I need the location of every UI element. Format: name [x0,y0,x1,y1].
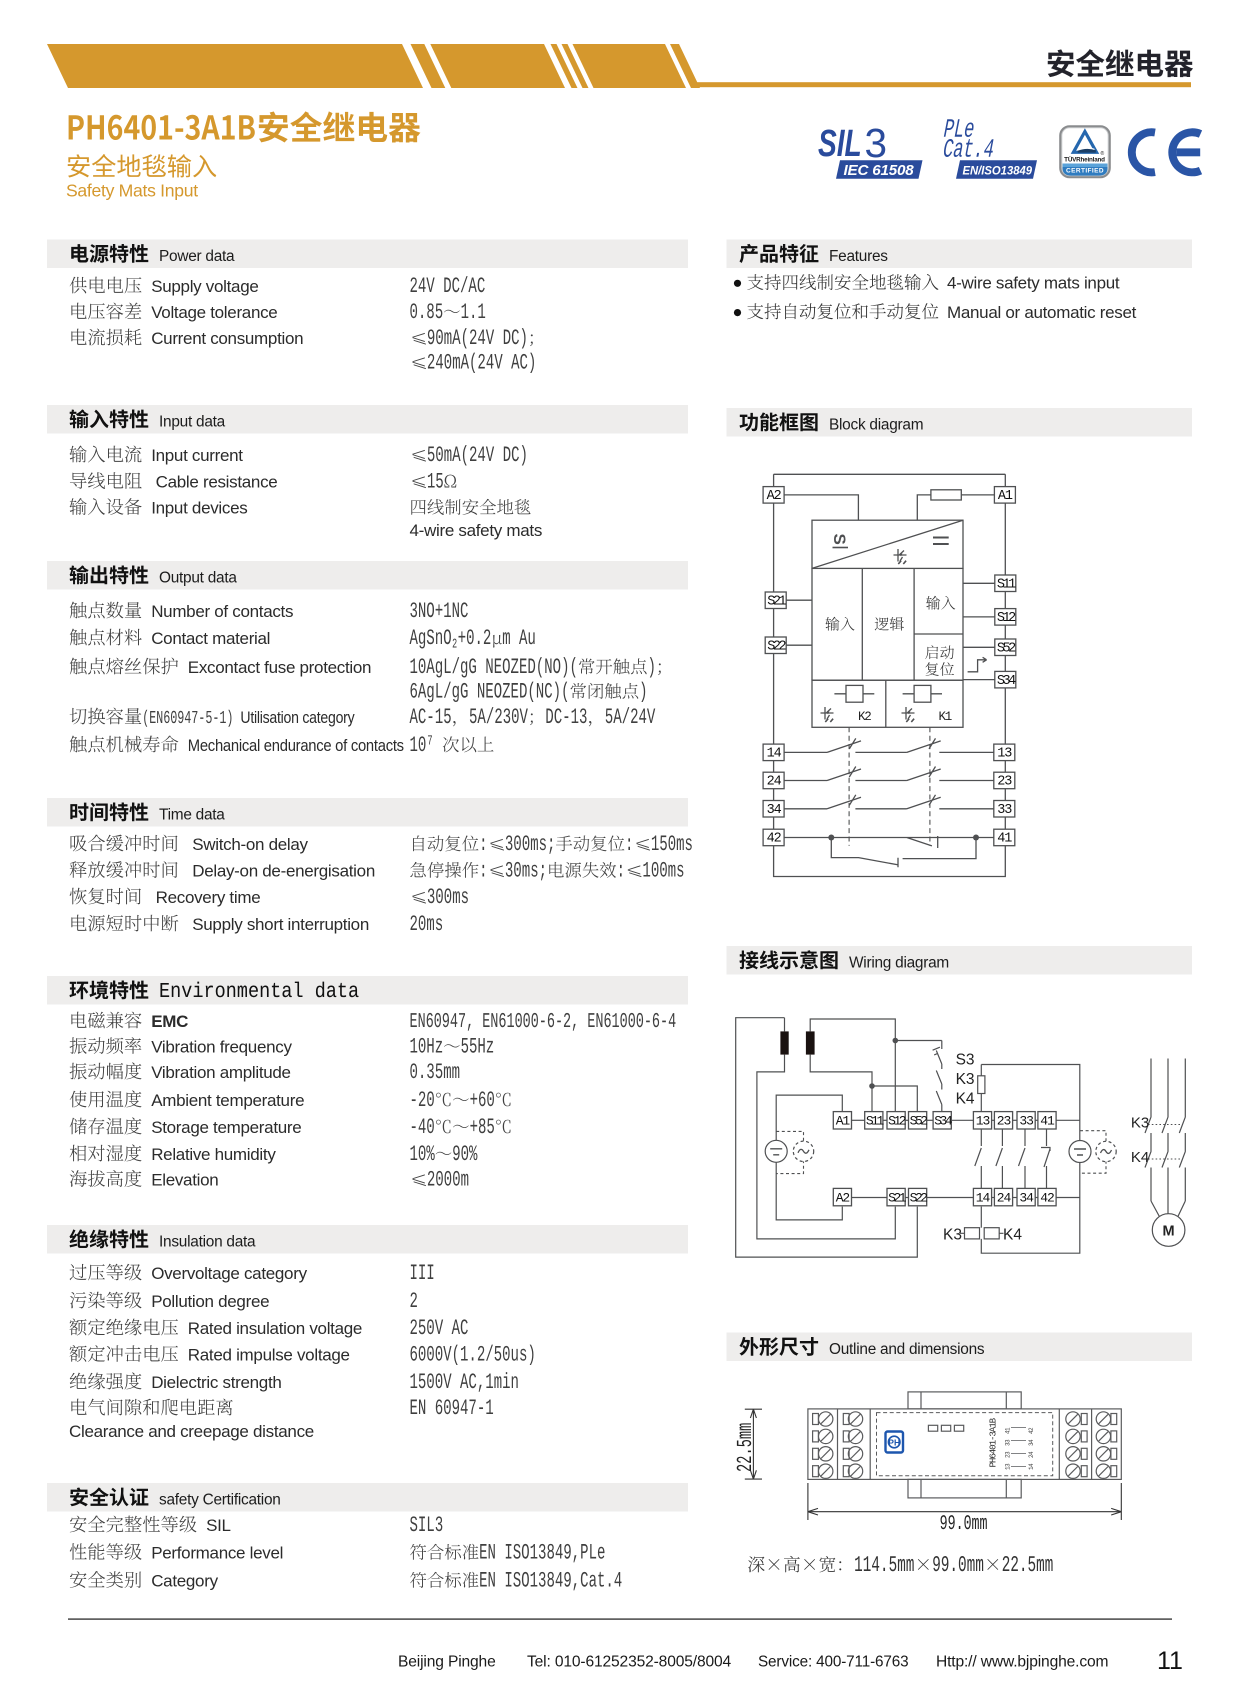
svg-text:Overvoltage category: Overvoltage category [151,1264,307,1283]
svg-text:14 24 34 42: 14 24 34 42 [1028,1427,1035,1470]
svg-text:Excontact fuse protection: Excontact fuse protection [188,658,371,677]
svg-text:S: S [830,534,849,545]
svg-text:33: 33 [1019,1114,1033,1129]
svg-text:4-wire safety mats: 4-wire safety mats [410,521,543,540]
svg-text:Relative humidity: Relative humidity [151,1145,276,1164]
svg-text:EN/ISO13849: EN/ISO13849 [963,164,1033,178]
svg-text:S12: S12 [997,611,1016,626]
svg-text:Supply voltage: Supply voltage [151,277,258,296]
svg-text:14: 14 [976,1190,991,1205]
svg-text:3: 3 [865,120,888,166]
svg-text:Http:// www.bjpinghe.com: Http:// www.bjpinghe.com [936,1654,1108,1671]
svg-text:41: 41 [1040,1114,1055,1129]
svg-text:A1: A1 [836,1114,851,1129]
svg-text:S22: S22 [910,1190,928,1205]
svg-text:Switch-on delay: Switch-on delay [188,835,309,854]
svg-text:23: 23 [997,775,1012,790]
svg-text:24: 24 [767,775,782,790]
svg-text:Input current: Input current [151,446,243,465]
svg-text:Tel: 010-61252352-8005/8004: Tel: 010-61252352-8005/8004 [527,1654,732,1671]
svg-text:Vibration amplitude: Vibration amplitude [151,1063,291,1082]
svg-text:Input data: Input data [159,414,226,431]
svg-text:Input devices: Input devices [151,499,247,518]
svg-text:Dielectric strength: Dielectric strength [151,1373,281,1392]
svg-text:Voltage tolerance: Voltage tolerance [151,303,277,322]
svg-text:4-wire safety mats input: 4-wire safety mats input [947,274,1120,293]
svg-text:Recovery time: Recovery time [151,888,260,907]
svg-text:Performance level: Performance level [151,1544,283,1563]
svg-text:S21: S21 [767,594,786,609]
svg-text:13: 13 [976,1114,990,1129]
svg-text:S34: S34 [934,1114,953,1129]
svg-text:Supply short interruption: Supply short interruption [188,915,369,934]
svg-text:42: 42 [767,832,782,847]
svg-text:Service: 400-711-6763: Service: 400-711-6763 [758,1654,908,1671]
svg-text:Rated insulation voltage: Rated insulation voltage [188,1319,362,1338]
svg-text:Cable resistance: Cable resistance [151,473,277,492]
svg-text:IEC 61508: IEC 61508 [844,162,915,179]
svg-text:Elevation: Elevation [151,1171,218,1190]
svg-text:33: 33 [997,803,1012,818]
svg-text:Rated impulse voltage: Rated impulse voltage [188,1346,350,1365]
svg-text:Delay-on de-energisation: Delay-on de-energisation [188,862,375,881]
svg-text:Power data: Power data [159,248,235,265]
svg-text:S3: S3 [956,1052,975,1069]
svg-text:Outline and dimensions: Outline and dimensions [829,1341,985,1358]
svg-text:K4: K4 [1003,1227,1022,1244]
svg-text:S34: S34 [997,674,1016,689]
svg-text:42: 42 [1040,1190,1054,1205]
svg-text:Number of contacts: Number of contacts [151,602,293,621]
svg-text:A2: A2 [767,489,782,504]
svg-text:11: 11 [1157,1647,1183,1675]
svg-text:34: 34 [767,803,782,818]
svg-text:Features: Features [829,248,888,265]
svg-text:S52: S52 [910,1114,928,1129]
svg-text:K3: K3 [956,1071,975,1088]
svg-text:Manual or automatic reset: Manual or automatic reset [947,303,1137,322]
svg-text:A2: A2 [836,1190,850,1205]
svg-text:Storage temperature: Storage temperature [151,1118,301,1137]
svg-text:SIL: SIL [818,123,862,165]
svg-text:S52: S52 [997,642,1016,657]
svg-text:41: 41 [997,832,1012,847]
svg-text:Contact material: Contact material [151,629,270,648]
svg-text:Vibration frequency: Vibration frequency [151,1038,292,1057]
svg-text:PH6401-3A1B: PH6401-3A1B [988,1417,999,1467]
svg-text:24: 24 [997,1190,1012,1205]
svg-text:K1: K1 [939,710,952,724]
svg-text:K4: K4 [1131,1149,1149,1166]
svg-text:Insulation data: Insulation data [159,1234,256,1251]
svg-text:Time data: Time data [159,807,225,824]
svg-text:Category: Category [151,1572,218,1591]
svg-text:Mechanical endurance of contac: Mechanical endurance of contacts [188,736,404,755]
svg-text:Block diagram: Block diagram [829,417,923,434]
svg-text:Wiring diagram: Wiring diagram [849,955,949,972]
svg-text:K4: K4 [956,1091,975,1108]
svg-text:S11: S11 [997,578,1016,593]
svg-text:Utilisation category: Utilisation category [240,708,355,727]
svg-text:EMC: EMC [151,1012,188,1031]
svg-text:Clearance and creepage distanc: Clearance and creepage distance [69,1422,314,1441]
svg-text:K3: K3 [943,1227,962,1244]
svg-text:14: 14 [767,747,782,762]
svg-text:K3: K3 [1131,1115,1149,1132]
svg-text:CERTIFIED: CERTIFIED [1066,167,1104,174]
svg-text:13: 13 [997,747,1012,762]
svg-text:Safety Mats Input: Safety Mats Input [66,181,198,201]
svg-text:Ambient temperature: Ambient temperature [151,1091,304,1110]
svg-text:23: 23 [997,1114,1011,1129]
svg-text:®: ® [1101,150,1105,157]
svg-text:PH: PH [888,1437,900,1447]
svg-text:Current consumption: Current consumption [151,329,303,348]
svg-text:34: 34 [1019,1190,1034,1205]
svg-text:13 23 33 41: 13 23 33 41 [1005,1427,1012,1470]
svg-text:A1: A1 [998,489,1013,504]
svg-text:S21: S21 [888,1190,907,1205]
svg-text:Beijing Pinghe: Beijing Pinghe [398,1654,496,1671]
svg-text:safety Certification: safety Certification [159,1492,281,1509]
svg-text:S12: S12 [888,1114,906,1129]
svg-text:TÜVRheinland: TÜVRheinland [1064,155,1105,164]
svg-text:S22: S22 [767,639,786,654]
svg-text:S11: S11 [866,1114,885,1129]
svg-text:Output data: Output data [159,570,237,587]
svg-text:M: M [1163,1224,1175,1240]
svg-text:Pollution degree: Pollution degree [151,1292,269,1311]
svg-text:SIL: SIL [206,1516,231,1535]
svg-text:K2: K2 [858,710,871,724]
